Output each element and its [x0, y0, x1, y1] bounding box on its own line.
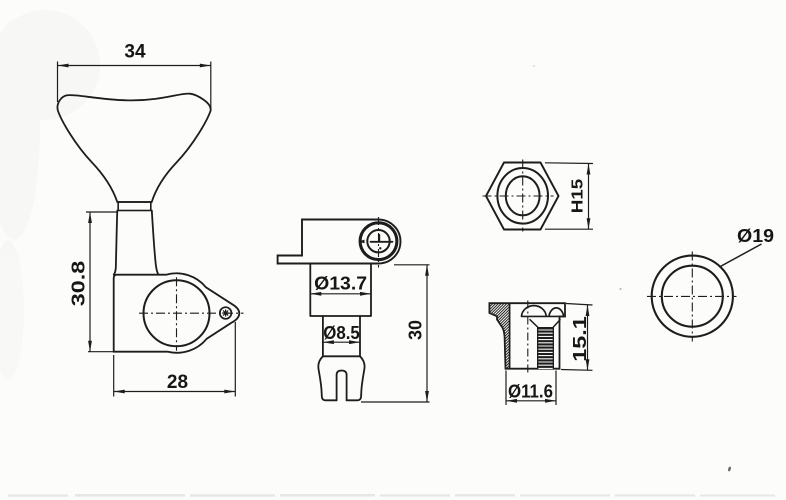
- svg-text:Ø13.7: Ø13.7: [314, 273, 367, 293]
- svg-text:30.8: 30.8: [67, 261, 88, 307]
- svg-text:Ø8.5: Ø8.5: [323, 323, 360, 343]
- svg-text:34: 34: [124, 42, 146, 63]
- svg-text:Ø11.6: Ø11.6: [508, 382, 553, 402]
- svg-text:28: 28: [167, 372, 188, 393]
- svg-text:Ø19: Ø19: [737, 225, 774, 246]
- svg-text:H15: H15: [570, 179, 587, 214]
- svg-text:15.1: 15.1: [569, 316, 590, 362]
- svg-text:30: 30: [405, 320, 426, 340]
